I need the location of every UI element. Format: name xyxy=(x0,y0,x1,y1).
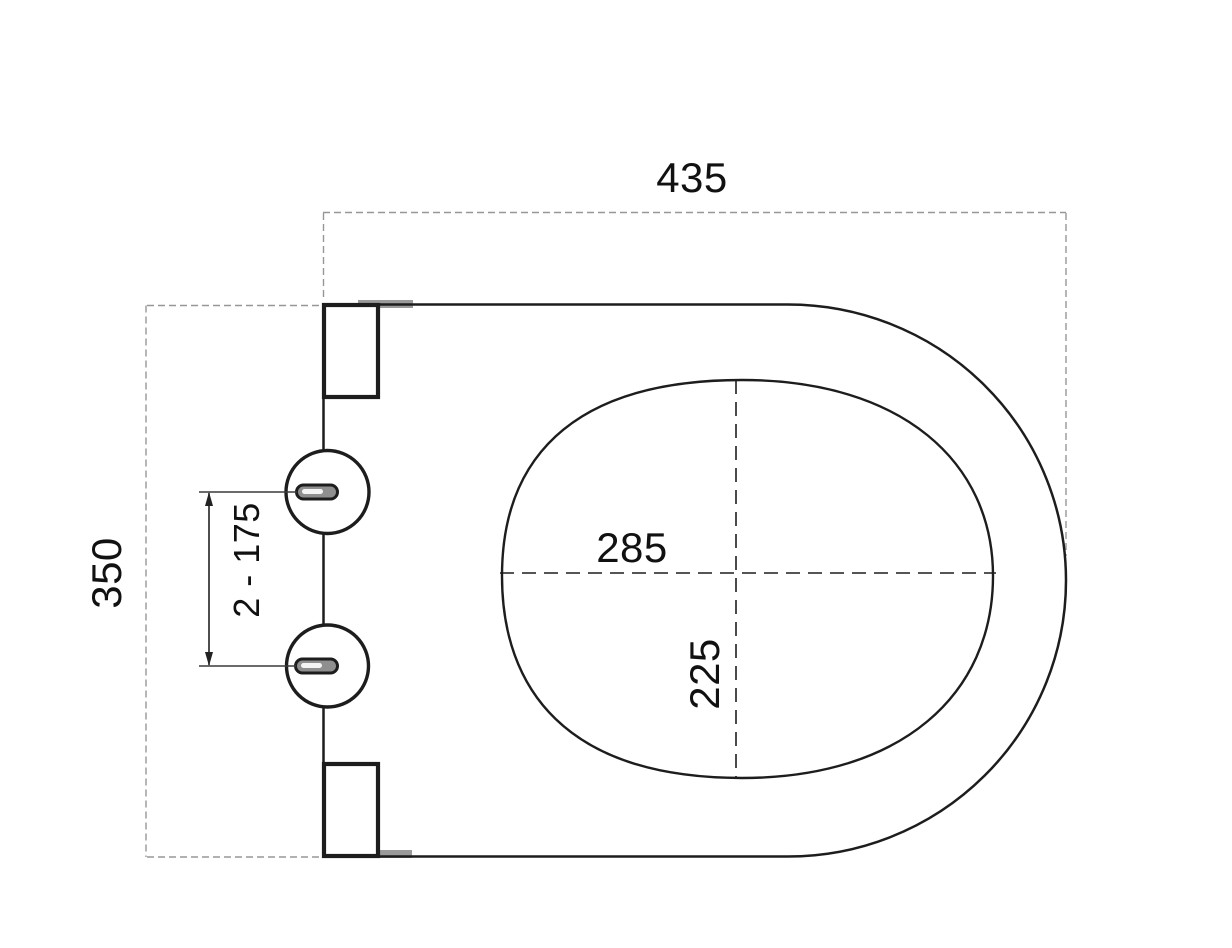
overall-width-guides xyxy=(323,213,1066,557)
arrow-up-icon xyxy=(205,492,213,506)
seat-inner-opening-outline xyxy=(502,380,993,778)
dimension-drawing-canvas: 435 350 285 225 2 - 175 xyxy=(0,0,1232,948)
hinge-bolt-bottom xyxy=(287,625,369,707)
mounting-tab-bottom xyxy=(324,764,378,856)
mounting-tab-top xyxy=(324,305,378,397)
hinge-spacing-label: 2 - 175 xyxy=(226,502,267,618)
opening-centerlines xyxy=(500,380,996,779)
hinge-slot-top-highlight xyxy=(302,489,323,494)
hinge-bolt-top xyxy=(286,451,369,534)
hinge-slot-bottom-highlight xyxy=(301,663,322,668)
inner-length-label: 285 xyxy=(596,524,668,571)
inner-width-label: 225 xyxy=(681,638,728,710)
seat-outer-outline xyxy=(324,305,1067,857)
toilet-seat-top-view-drawing: 435 350 285 225 2 - 175 xyxy=(0,0,1232,948)
overall-depth-label: 350 xyxy=(83,537,130,609)
arrow-down-icon xyxy=(205,652,213,666)
overall-width-label: 435 xyxy=(656,154,728,201)
